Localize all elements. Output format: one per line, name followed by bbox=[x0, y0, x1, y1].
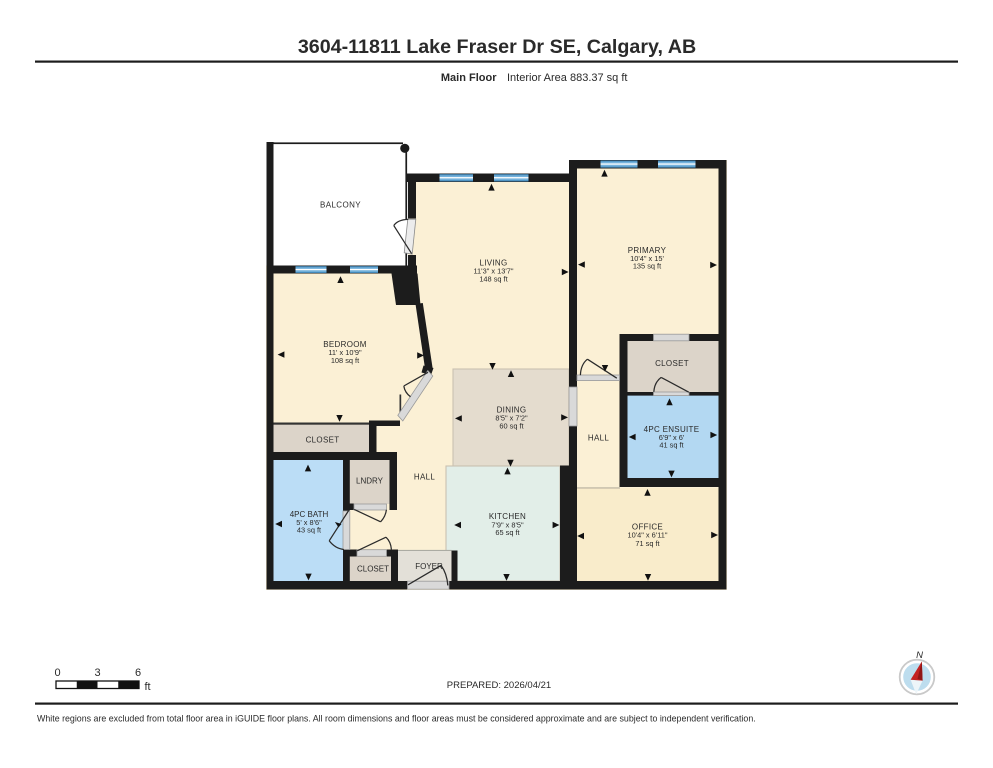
svg-text:HALL: HALL bbox=[588, 433, 609, 442]
svg-text:BALCONY: BALCONY bbox=[320, 201, 361, 210]
svg-text:6: 6 bbox=[135, 667, 141, 679]
svg-text:LNDRY: LNDRY bbox=[356, 476, 384, 485]
svg-text:N: N bbox=[916, 650, 923, 661]
svg-text:Interior Area 883.37 sq ft: Interior Area 883.37 sq ft bbox=[507, 72, 627, 84]
svg-text:HALL: HALL bbox=[414, 473, 435, 482]
svg-text:43 sq ft: 43 sq ft bbox=[297, 525, 321, 534]
svg-text:ft: ft bbox=[145, 681, 151, 693]
svg-text:3604-11811 Lake Fraser Dr SE,: 3604-11811 Lake Fraser Dr SE, Calgary, A… bbox=[298, 36, 696, 58]
svg-text:White regions are excluded fro: White regions are excluded from total fl… bbox=[37, 714, 756, 724]
svg-text:CLOSET: CLOSET bbox=[357, 564, 389, 573]
svg-text:135 sq ft: 135 sq ft bbox=[633, 262, 661, 271]
svg-text:PREPARED: 2026/04/21: PREPARED: 2026/04/21 bbox=[447, 680, 551, 691]
svg-text:FOYER: FOYER bbox=[415, 562, 443, 571]
svg-text:108 sq ft: 108 sq ft bbox=[331, 356, 359, 365]
svg-text:148 sq ft: 148 sq ft bbox=[479, 274, 507, 283]
svg-text:41 sq ft: 41 sq ft bbox=[659, 441, 683, 450]
svg-text:65 sq ft: 65 sq ft bbox=[495, 528, 519, 537]
svg-text:71 sq ft: 71 sq ft bbox=[635, 539, 659, 548]
svg-text:60 sq ft: 60 sq ft bbox=[499, 422, 523, 431]
svg-text:Main Floor: Main Floor bbox=[441, 72, 497, 84]
svg-text:0: 0 bbox=[54, 667, 60, 679]
svg-text:3: 3 bbox=[94, 667, 100, 679]
svg-text:CLOSET: CLOSET bbox=[306, 436, 340, 445]
svg-text:CLOSET: CLOSET bbox=[655, 359, 689, 368]
